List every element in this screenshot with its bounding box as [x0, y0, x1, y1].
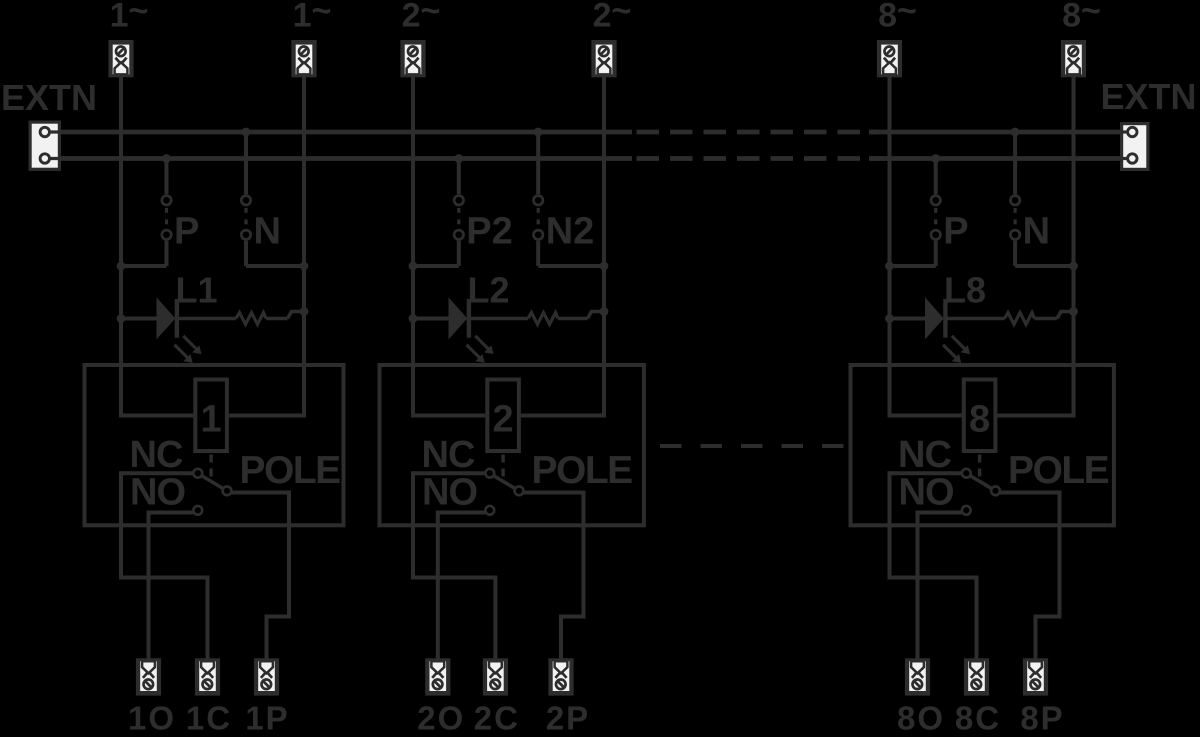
svg-text:NC: NC: [898, 434, 951, 476]
svg-text:8: 8: [969, 399, 990, 441]
svg-text:NO: NO: [130, 472, 185, 514]
svg-text:2: 2: [493, 399, 514, 441]
svg-text:8C: 8C: [955, 700, 1001, 737]
svg-text:L2: L2: [468, 270, 510, 311]
svg-text:1P: 1P: [245, 700, 289, 737]
svg-text:1~: 1~: [110, 0, 149, 35]
svg-text:1C: 1C: [186, 700, 232, 737]
svg-text:2~: 2~: [402, 0, 441, 35]
svg-text:2O: 2O: [417, 700, 465, 737]
svg-text:2C: 2C: [474, 700, 520, 737]
svg-text:EXTN: EXTN: [1, 77, 97, 118]
svg-text:L8: L8: [944, 270, 986, 311]
svg-text:N: N: [254, 211, 281, 253]
svg-text:8P: 8P: [1020, 700, 1064, 737]
svg-text:8O: 8O: [897, 700, 945, 737]
svg-text:NO: NO: [899, 472, 954, 514]
svg-text:POLE: POLE: [240, 449, 341, 492]
svg-text:N2: N2: [546, 211, 595, 253]
svg-text:N: N: [1023, 211, 1050, 253]
svg-text:POLE: POLE: [1008, 449, 1109, 492]
svg-text:P: P: [174, 211, 199, 253]
svg-text:POLE: POLE: [532, 449, 633, 492]
svg-text:1O: 1O: [128, 700, 176, 737]
svg-text:2~: 2~: [593, 0, 632, 35]
svg-text:8~: 8~: [878, 0, 917, 35]
svg-text:P2: P2: [466, 211, 512, 253]
svg-text:P: P: [943, 211, 968, 253]
svg-text:2P: 2P: [546, 700, 590, 737]
svg-text:NO: NO: [422, 472, 477, 514]
svg-text:1: 1: [201, 399, 222, 441]
svg-text:NC: NC: [130, 434, 183, 476]
svg-text:NC: NC: [422, 434, 475, 476]
svg-text:L1: L1: [176, 270, 218, 311]
svg-text:EXTN: EXTN: [1101, 76, 1197, 117]
svg-text:1~: 1~: [293, 0, 332, 35]
svg-text:8~: 8~: [1062, 0, 1101, 35]
